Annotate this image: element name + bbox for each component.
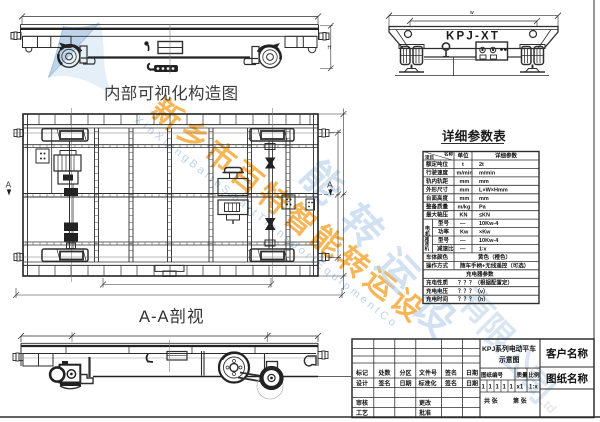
svg-text:车体颜色: 车体颜色 — [426, 253, 449, 261]
svg-text:KPJ系列电动平车: KPJ系列电动平车 — [482, 344, 536, 353]
svg-text:mm: mm — [460, 179, 470, 185]
svg-text:A-A剖视: A-A剖视 — [139, 307, 205, 326]
svg-text:整备质量: 整备质量 — [426, 202, 449, 210]
svg-text:KPJ-XT: KPJ-XT — [446, 31, 500, 43]
svg-text:型号: 型号 — [438, 236, 450, 244]
svg-text:≤KN: ≤KN — [479, 213, 490, 219]
svg-text:mm: mm — [460, 187, 470, 193]
svg-text:mm: mm — [460, 196, 470, 202]
svg-text:审核: 审核 — [356, 399, 368, 407]
svg-text:A: A — [6, 180, 12, 190]
svg-text:示意图: 示意图 — [499, 355, 520, 364]
svg-text:充电性质: 充电性质 — [426, 278, 449, 286]
svg-text:比例: 比例 — [529, 371, 541, 379]
svg-text:？？？（根据配置定）: ？？？（根据配置定） — [458, 278, 513, 286]
svg-text:日期: 日期 — [466, 369, 478, 377]
svg-text:日期: 日期 — [466, 379, 478, 387]
svg-text:详细参数表: 详细参数表 — [442, 129, 506, 144]
svg-text:名称: 名称 — [444, 151, 453, 158]
svg-text:2t: 2t — [479, 162, 484, 168]
svg-text:—: — — [460, 221, 466, 227]
svg-text:减速比: 减速比 — [437, 244, 454, 252]
svg-text:1∶x: 1∶x — [479, 246, 487, 252]
svg-text:Kw: Kw — [460, 230, 469, 236]
svg-text:×Kw: ×Kw — [479, 230, 491, 236]
svg-text:充电时间: 充电时间 — [426, 295, 449, 303]
svg-text:H: H — [328, 45, 332, 51]
svg-text:Pa: Pa — [479, 204, 487, 210]
svg-text:共 张: 共 张 — [484, 397, 499, 405]
svg-text:轨内轨距: 轨内轨距 — [426, 177, 449, 185]
svg-text:m/min: m/min — [457, 171, 474, 177]
svg-text:充电电压: 充电电压 — [426, 287, 449, 295]
svg-text:日期: 日期 — [400, 379, 412, 387]
svg-text:机: 机 — [425, 245, 430, 252]
svg-text:mm: mm — [479, 196, 489, 202]
svg-text:mm: mm — [479, 179, 489, 185]
svg-text:质量: 质量 — [517, 371, 529, 379]
svg-text:内部可视化构造图: 内部可视化构造图 — [104, 84, 238, 103]
svg-text:行驶速度: 行驶速度 — [425, 169, 449, 177]
svg-text:文件号: 文件号 — [418, 369, 437, 377]
svg-text:分区: 分区 — [400, 369, 412, 377]
svg-text:额定吨位: 额定吨位 — [426, 160, 449, 168]
svg-text:功率: 功率 — [438, 228, 450, 236]
svg-text:—: — — [460, 238, 466, 244]
svg-text:签名: 签名 — [444, 369, 457, 377]
svg-text:外形尺寸: 外形尺寸 — [426, 185, 449, 193]
svg-text:单位: 单位 — [458, 152, 470, 160]
svg-text:黄色（橙色）: 黄色（橙色） — [478, 253, 511, 261]
svg-text:最大轴压: 最大轴压 — [426, 211, 449, 219]
svg-text:—: — — [460, 246, 466, 252]
svg-text:图纸名称: 图纸名称 — [546, 372, 588, 385]
svg-text:型号: 型号 — [438, 219, 450, 227]
svg-text:操作方式: 操作方式 — [426, 261, 449, 269]
svg-text:m/kg: m/kg — [458, 204, 471, 210]
svg-text:处数: 处数 — [378, 369, 392, 377]
svg-text:签名: 签名 — [378, 379, 391, 387]
svg-text:标记: 标记 — [355, 369, 368, 377]
svg-text:m/min: m/min — [479, 171, 496, 177]
svg-text:？？？（v）: ？？？（v） — [458, 287, 489, 295]
svg-text:项目: 项目 — [425, 154, 434, 161]
svg-text:详细参数: 详细参数 — [495, 152, 518, 160]
svg-text:工艺: 工艺 — [356, 409, 368, 417]
svg-text:设计: 设计 — [356, 379, 368, 387]
svg-text:10Kw-4: 10Kw-4 — [479, 238, 499, 244]
svg-text:A: A — [327, 180, 333, 190]
svg-text:图纸编号: 图纸编号 — [481, 371, 504, 379]
svg-text:1:x: 1:x — [529, 385, 538, 391]
svg-text:w: w — [470, 10, 474, 16]
svg-text:x1: x1 — [517, 385, 524, 391]
svg-text:第 张: 第 张 — [512, 397, 528, 405]
svg-text:？？？（h）: ？？？（h） — [458, 295, 489, 303]
svg-text:L×W×Hmm: L×W×Hmm — [479, 187, 508, 193]
svg-text:台面高度: 台面高度 — [426, 194, 449, 202]
svg-text:10Kw-4: 10Kw-4 — [479, 221, 499, 227]
svg-text:随车手柄+无线遥控（可选）: 随车手柄+无线遥控（可选） — [460, 261, 529, 269]
svg-text:充电器参数: 充电器参数 — [466, 270, 494, 278]
svg-text:批准: 批准 — [419, 409, 431, 417]
svg-text:KN: KN — [460, 213, 468, 219]
svg-text:更改: 更改 — [419, 399, 432, 407]
svg-text:t: t — [462, 162, 464, 168]
svg-text:客户名称: 客户名称 — [545, 347, 588, 360]
svg-text:标准化: 标准化 — [418, 379, 437, 387]
svg-text:签名: 签名 — [444, 379, 457, 387]
